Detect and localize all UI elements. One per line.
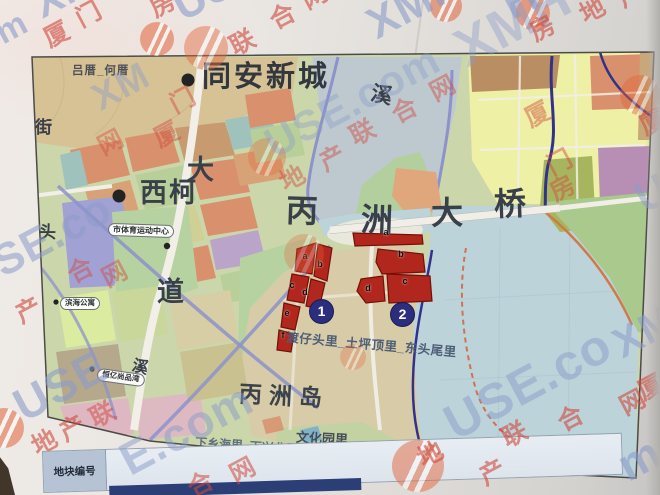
parcel-label-2a: a (380, 228, 392, 237)
label-avenue-char-2: 道 (157, 279, 184, 306)
parcel-label-1e: e (281, 309, 293, 318)
label-bridge-char-4: 桥 (493, 187, 526, 220)
watermark-logo-circle (184, 26, 228, 70)
label-tongan-new-city: 同安新城 (202, 63, 330, 92)
watermark-logo-circle (284, 234, 324, 274)
watermark-logo-circle (340, 344, 366, 370)
parcel-label-1f: f (277, 331, 289, 340)
page-edge-shadow (646, 0, 660, 495)
label-street-char: 街 (35, 119, 52, 136)
cluster-2-badge: 2 (390, 302, 415, 327)
table-header-parcel-id: 地块编号 (43, 450, 107, 492)
label-avenue-char-1: 大 (187, 157, 214, 184)
parcel-label-2c: c (399, 277, 411, 286)
cluster-1-badge: 1 (309, 299, 334, 324)
parcel-label-1c: c (286, 281, 298, 290)
photographed-planning-page: 吕厝_何厝 同安新城 西柯 丙 洲 大 桥 溪 街 头 大 道 溪 市体育运动中… (0, 0, 660, 495)
parcel-label-2b: b (395, 250, 407, 259)
label-bridge-char-1: 丙 (285, 194, 318, 227)
watermark-logo-circle (140, 22, 174, 56)
label-bridge-char-3: 大 (431, 197, 464, 230)
parcel-label-2d: d (362, 284, 374, 293)
parcel-label-1d: d (299, 288, 311, 297)
label-binhai-apartment: 滨海公寓 (60, 297, 100, 310)
